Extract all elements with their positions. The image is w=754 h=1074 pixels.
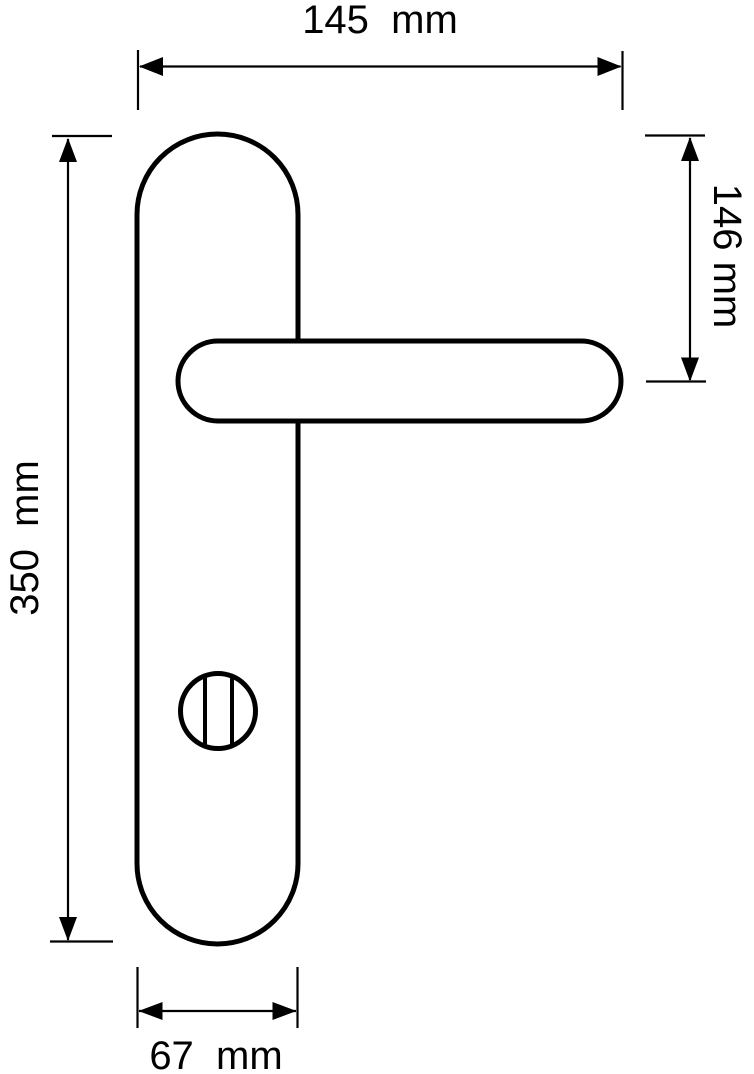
lever-handle-outline	[178, 341, 621, 421]
arrowhead-down-icon	[681, 358, 699, 382]
arrowhead-up-icon	[681, 137, 699, 161]
dimension-label-top-to-handle: 146 mm	[705, 184, 749, 329]
thumbturn-knob	[181, 674, 256, 749]
arrowhead-down-icon	[59, 917, 77, 941]
arrowhead-right-icon	[273, 1002, 297, 1020]
dimension-label-plate-height: 350 mm	[3, 460, 47, 616]
arrowhead-left-icon	[139, 1002, 163, 1020]
dimension-overall-width: 145 mm	[138, 0, 623, 110]
door-handle-technical-drawing: 145 mm 350 mm 146 mm	[0, 0, 754, 1074]
backplate-outline	[137, 134, 298, 944]
dimension-top-to-handle: 146 mm	[645, 136, 749, 382]
dimension-plate-height: 350 mm	[3, 136, 113, 942]
dimension-label-plate-width: 67 mm	[149, 1034, 282, 1074]
arrowhead-right-icon	[598, 57, 622, 76]
arrowhead-up-icon	[59, 138, 77, 162]
dimension-plate-width: 67 mm	[138, 967, 298, 1074]
dimension-label-overall-width: 145 mm	[302, 0, 458, 42]
thumbturn-circle	[181, 674, 256, 749]
drawing-canvas: 145 mm 350 mm 146 mm	[0, 0, 754, 1074]
arrowhead-left-icon	[139, 57, 163, 76]
